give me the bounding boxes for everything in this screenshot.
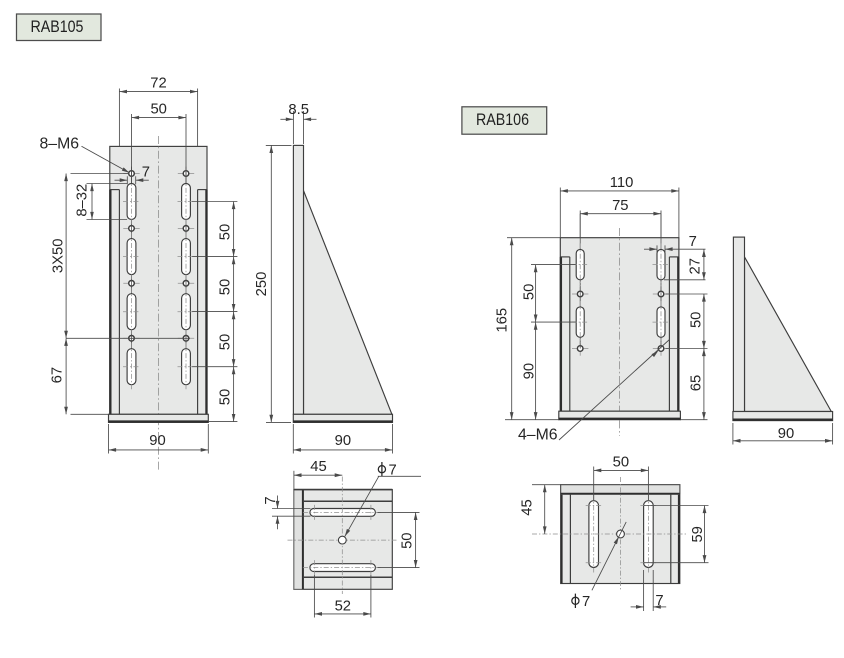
svg-text:50: 50 <box>217 389 233 405</box>
svg-text:27: 27 <box>688 258 704 274</box>
svg-text:67: 67 <box>50 367 66 383</box>
svg-text:7: 7 <box>263 496 279 504</box>
svg-text:8.5: 8.5 <box>288 102 309 118</box>
svg-text:75: 75 <box>612 198 628 214</box>
svg-text:8–M6: 8–M6 <box>40 136 80 153</box>
svg-text:8–32: 8–32 <box>75 184 91 217</box>
svg-text:45: 45 <box>310 459 326 475</box>
svg-text:7: 7 <box>689 234 697 250</box>
svg-text:50: 50 <box>521 284 537 300</box>
svg-text:90: 90 <box>778 426 794 442</box>
svg-text:50: 50 <box>217 279 233 295</box>
svg-text:72: 72 <box>150 76 166 92</box>
svg-text:3X50: 3X50 <box>50 239 66 274</box>
svg-text:50: 50 <box>688 312 704 328</box>
svg-text:RAB105: RAB105 <box>30 18 83 36</box>
svg-text:50: 50 <box>217 224 233 240</box>
svg-text:90: 90 <box>521 363 537 379</box>
svg-text:7: 7 <box>142 165 150 181</box>
svg-text:7: 7 <box>582 594 590 610</box>
svg-text:90: 90 <box>335 433 351 449</box>
svg-text:50: 50 <box>217 334 233 350</box>
svg-text:50: 50 <box>150 102 166 118</box>
svg-text:50: 50 <box>613 455 629 471</box>
svg-text:45: 45 <box>519 499 535 515</box>
svg-text:165: 165 <box>495 308 511 333</box>
svg-text:4–M6: 4–M6 <box>518 427 558 444</box>
svg-text:50: 50 <box>400 532 416 548</box>
svg-text:65: 65 <box>688 375 704 391</box>
svg-text:250: 250 <box>254 272 270 297</box>
svg-text:52: 52 <box>335 599 351 615</box>
svg-text:90: 90 <box>149 433 165 449</box>
svg-text:RAB106: RAB106 <box>476 111 529 129</box>
svg-text:59: 59 <box>690 526 706 542</box>
svg-text:7: 7 <box>655 593 663 609</box>
svg-text:110: 110 <box>610 175 634 191</box>
